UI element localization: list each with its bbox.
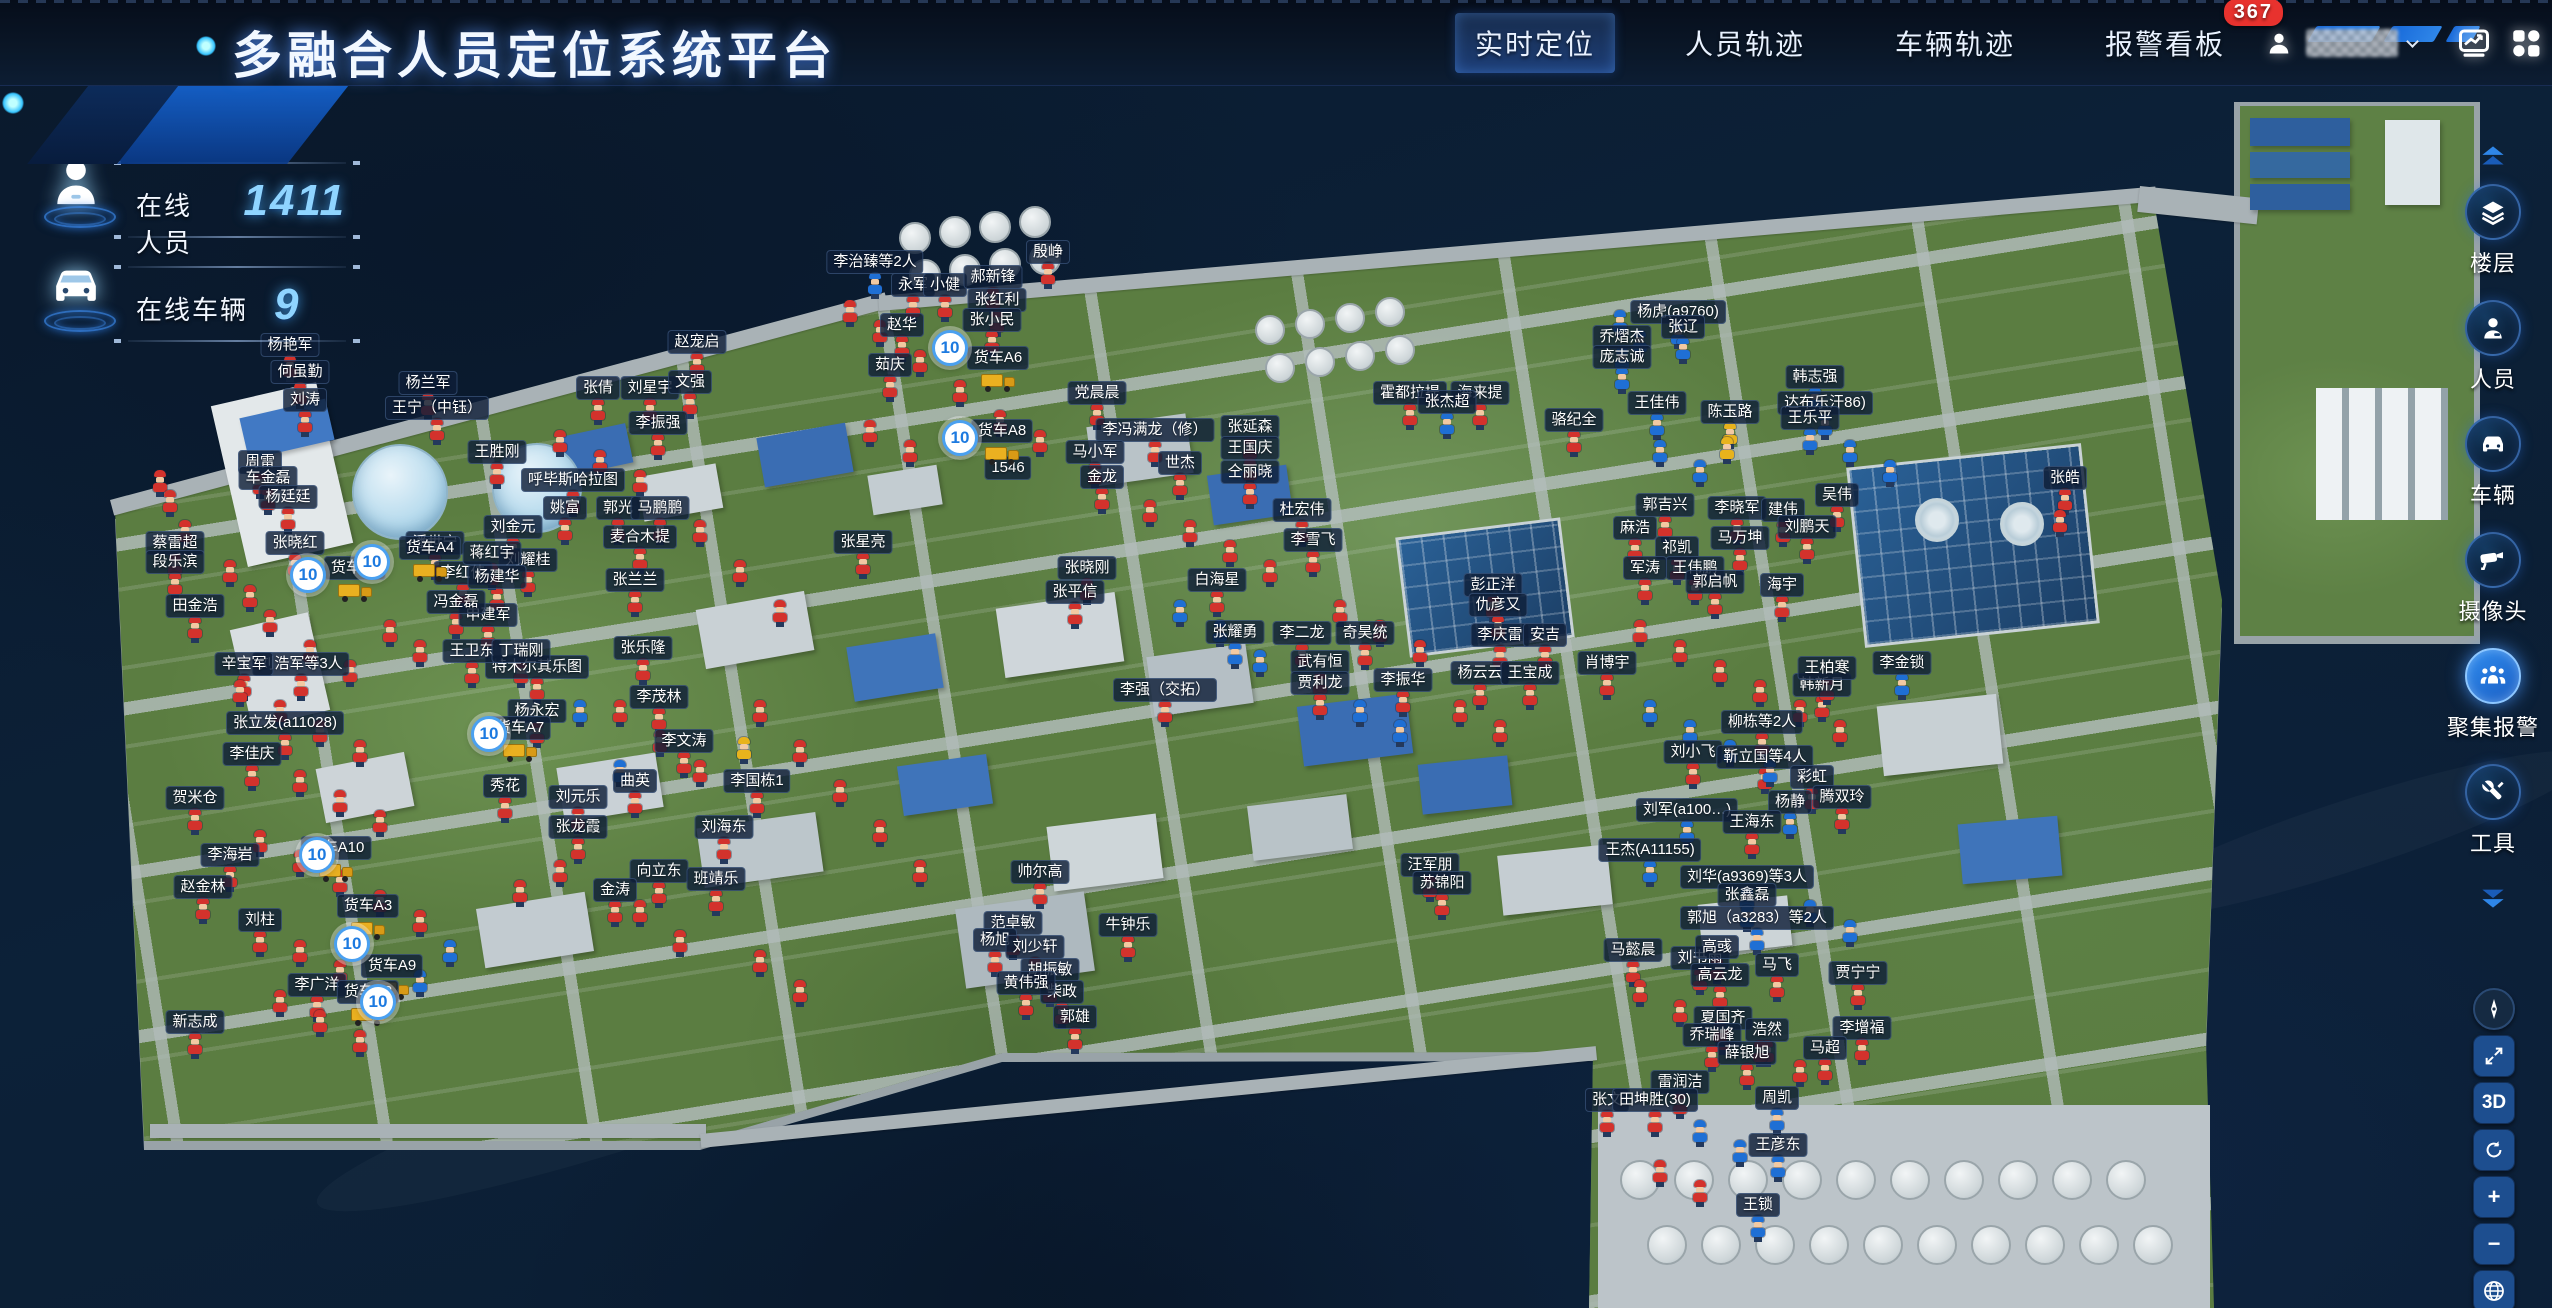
worker-figure[interactable]	[1395, 690, 1411, 717]
worker-figure[interactable]	[382, 620, 398, 647]
worker-figure[interactable]	[1799, 537, 1815, 564]
person-label[interactable]: 仝丽晓	[1220, 460, 1279, 484]
person-label[interactable]: 班靖乐	[686, 867, 745, 891]
person-label[interactable]: 何虽勤	[270, 360, 329, 384]
worker-figure[interactable]	[627, 590, 643, 617]
worker-figure[interactable]	[1412, 640, 1428, 667]
person-label[interactable]: 郭雄	[1053, 1005, 1097, 1029]
worker-figure[interactable]	[352, 1030, 368, 1057]
zoom-out-button[interactable]: −	[2473, 1223, 2515, 1265]
person-label[interactable]: 蒋红宇	[462, 541, 521, 565]
reset-view-button[interactable]	[2473, 1129, 2515, 1171]
worker-figure[interactable]	[1750, 1215, 1766, 1242]
worker-figure[interactable]	[1067, 1027, 1083, 1054]
username-blurred[interactable]	[2306, 29, 2398, 57]
nav-tab-2[interactable]: 人员轨迹	[1665, 13, 1825, 73]
person-label[interactable]: 马懿晨	[1603, 938, 1662, 962]
worker-figure[interactable]	[1642, 700, 1658, 727]
worker-figure[interactable]	[1032, 430, 1048, 457]
person-label[interactable]: 贾宁宁	[1828, 961, 1887, 985]
worker-figure[interactable]	[187, 808, 203, 835]
worker-figure[interactable]	[1770, 1155, 1786, 1182]
person-label[interactable]: 李振强	[628, 411, 687, 435]
person-label[interactable]: 张立发(a11028)	[226, 711, 344, 735]
cluster-badge[interactable]: 10	[942, 420, 978, 456]
worker-figure[interactable]	[650, 433, 666, 460]
worker-figure[interactable]	[1719, 437, 1735, 464]
person-label[interactable]: 郭旭（a3283）等2人	[1680, 906, 1834, 930]
person-label[interactable]: 刘元乐	[548, 785, 607, 809]
person-label[interactable]: 张耀勇	[1205, 620, 1264, 644]
nav-tab-4[interactable]: 报警看板367	[2085, 13, 2245, 73]
person-label[interactable]: 柳栋等2人	[1721, 710, 1803, 734]
worker-figure[interactable]	[676, 751, 692, 778]
worker-figure[interactable]	[842, 300, 858, 327]
apps-grid-icon[interactable]	[2505, 22, 2547, 64]
worker-figure[interactable]	[692, 760, 708, 787]
worker-figure[interactable]	[752, 700, 768, 727]
person-label[interactable]: 田金浩	[165, 594, 224, 618]
person-label[interactable]: 李国栋1	[723, 769, 790, 793]
person-label[interactable]: 新志成	[165, 1010, 224, 1034]
person-label[interactable]: 陈玉路	[1700, 400, 1759, 424]
worker-figure[interactable]	[1774, 595, 1790, 622]
person-label[interactable]: 仇彦又	[1468, 593, 1527, 617]
worker-figure[interactable]	[1842, 440, 1858, 467]
person-label[interactable]: 王国庆	[1220, 436, 1279, 460]
person-label[interactable]: 王锁	[1736, 1193, 1780, 1217]
worker-figure[interactable]	[195, 897, 211, 924]
person-label[interactable]: 安吉	[1523, 623, 1567, 647]
person-label[interactable]: 王柏寒	[1797, 656, 1856, 680]
person-label[interactable]: 刘柱	[238, 908, 282, 932]
worker-figure[interactable]	[1172, 600, 1188, 627]
person-label[interactable]: 马鹏鹏	[630, 496, 689, 520]
worker-figure[interactable]	[1209, 590, 1225, 617]
worker-figure[interactable]	[292, 940, 308, 967]
worker-figure[interactable]	[1242, 482, 1258, 509]
person-label[interactable]: 韩志强	[1785, 365, 1844, 389]
person-label[interactable]: 王海东	[1722, 810, 1781, 834]
person-label[interactable]: 马小军	[1065, 440, 1124, 464]
worker-figure[interactable]	[772, 600, 788, 627]
worker-figure[interactable]	[187, 1032, 203, 1059]
worker-figure[interactable]	[937, 295, 953, 322]
worker-figure[interactable]	[272, 990, 288, 1017]
person-label[interactable]: 薛银旭	[1717, 1041, 1776, 1065]
worker-figure[interactable]	[612, 700, 628, 727]
person-label[interactable]: 张鑫磊	[1717, 883, 1776, 907]
worker-figure[interactable]	[187, 616, 203, 643]
worker-figure[interactable]	[867, 272, 883, 299]
worker-figure[interactable]	[1675, 337, 1691, 364]
worker-figure[interactable]	[1769, 1108, 1785, 1135]
worker-figure[interactable]	[912, 350, 928, 377]
worker-figure[interactable]	[280, 507, 296, 534]
worker-figure[interactable]	[1312, 693, 1328, 720]
worker-figure[interactable]	[1647, 1110, 1663, 1137]
worker-figure[interactable]	[752, 950, 768, 977]
person-label[interactable]: 肖博宇	[1577, 651, 1636, 675]
worker-figure[interactable]	[1182, 520, 1198, 547]
nav-tab-3[interactable]: 车辆轨迹	[1875, 13, 2035, 73]
worker-figure[interactable]	[242, 585, 258, 612]
worker-figure[interactable]	[1142, 500, 1158, 527]
worker-figure[interactable]	[372, 810, 388, 837]
basemap-button[interactable]	[2473, 1270, 2515, 1308]
worker-figure[interactable]	[1252, 650, 1268, 677]
worker-figure[interactable]	[632, 900, 648, 927]
worker-figure[interactable]	[332, 790, 348, 817]
worker-figure[interactable]	[497, 796, 513, 823]
person-label[interactable]: 殷峥	[1026, 240, 1070, 264]
person-label[interactable]: 杨兰军	[398, 371, 457, 395]
worker-figure[interactable]	[952, 380, 968, 407]
worker-figure[interactable]	[627, 791, 643, 818]
person-label[interactable]: 王乐平	[1780, 406, 1839, 430]
person-label[interactable]: 小健	[923, 273, 967, 297]
tool-person[interactable]: 人员	[2465, 300, 2521, 394]
person-label[interactable]: 骆纪全	[1544, 408, 1603, 432]
rail-scroll-up-icon[interactable]	[2476, 144, 2510, 170]
worker-figure[interactable]	[590, 398, 606, 425]
vehicle-label[interactable]: 货车A3	[337, 894, 399, 918]
worker-figure[interactable]	[1157, 700, 1173, 727]
zoom-in-button[interactable]: +	[2473, 1176, 2515, 1218]
person-label[interactable]: 李二龙	[1272, 621, 1331, 645]
fullscreen-button[interactable]	[2473, 1035, 2515, 1077]
worker-figure[interactable]	[1434, 893, 1450, 920]
worker-figure[interactable]	[792, 740, 808, 767]
person-label[interactable]: 杜宏伟	[1272, 498, 1331, 522]
person-label[interactable]: 周凯	[1755, 1086, 1799, 1110]
person-label[interactable]: 张小民	[962, 308, 1021, 332]
person-label[interactable]: 黄伟强	[996, 971, 1055, 995]
monitor-chart-icon[interactable]	[2453, 22, 2495, 64]
person-label[interactable]: 张乐隆	[613, 636, 672, 660]
worker-figure[interactable]	[1357, 643, 1373, 670]
worker-figure[interactable]	[708, 889, 724, 916]
worker-figure[interactable]	[1672, 640, 1688, 667]
worker-figure[interactable]	[1632, 620, 1648, 647]
worker-figure[interactable]	[1472, 683, 1488, 710]
person-label[interactable]: 刘金元	[483, 515, 542, 539]
person-label[interactable]: 张兰兰	[605, 568, 664, 592]
cluster-badge[interactable]: 10	[354, 544, 390, 580]
person-label[interactable]: 马万坤	[1710, 526, 1769, 550]
person-label[interactable]: 姚富	[543, 496, 587, 520]
plant-3d-map[interactable]: 杨艳军何虽勤刘涛杨兰军王宁（中钰）王胜刚周雷车金磊杨廷廷蔡雷超段乐滨张晓红潘世宁…	[0, 0, 2552, 1308]
person-label[interactable]: 呼毕斯哈拉图	[521, 468, 625, 492]
person-label[interactable]: 刘海东	[694, 815, 753, 839]
person-label[interactable]: 王杰(A11155)	[1598, 838, 1701, 862]
person-label[interactable]: 郭启帆	[1685, 570, 1744, 594]
worker-figure[interactable]	[222, 560, 238, 587]
worker-figure[interactable]	[489, 462, 505, 489]
worker-figure[interactable]	[1692, 1180, 1708, 1207]
worker-figure[interactable]	[1352, 700, 1368, 727]
truck-marker[interactable]	[985, 445, 1019, 465]
person-label[interactable]: 刘少轩	[1005, 935, 1064, 959]
person-label[interactable]: 王胜刚	[467, 440, 526, 464]
worker-figure[interactable]	[1566, 430, 1582, 457]
worker-figure[interactable]	[312, 1010, 328, 1037]
worker-figure[interactable]	[412, 640, 428, 667]
worker-figure[interactable]	[1614, 367, 1630, 394]
worker-figure[interactable]	[552, 430, 568, 457]
worker-figure[interactable]	[832, 780, 848, 807]
person-label[interactable]: 张星亮	[833, 530, 892, 554]
worker-figure[interactable]	[1599, 1110, 1615, 1137]
person-label[interactable]: 张皓	[2043, 466, 2087, 490]
cluster-badge[interactable]: 10	[334, 926, 370, 962]
person-label[interactable]: 李庆雷	[1470, 623, 1529, 647]
worker-figure[interactable]	[292, 770, 308, 797]
person-label[interactable]: 军涛	[1623, 556, 1667, 580]
cluster-badge[interactable]: 10	[932, 330, 968, 366]
truck-marker[interactable]	[338, 582, 372, 602]
worker-figure[interactable]	[412, 910, 428, 937]
person-label[interactable]: 文强	[668, 370, 712, 394]
worker-figure[interactable]	[1120, 935, 1136, 962]
person-label[interactable]: 白海星	[1187, 568, 1246, 592]
worker-figure[interactable]	[1392, 720, 1408, 747]
person-label[interactable]: 张晓红	[265, 531, 324, 555]
worker-figure[interactable]	[1172, 473, 1188, 500]
worker-figure[interactable]	[749, 791, 765, 818]
nav-tab-1[interactable]: 实时定位	[1455, 13, 1615, 73]
worker-figure[interactable]	[1752, 680, 1768, 707]
worker-figure[interactable]	[1749, 928, 1765, 955]
cluster-badge[interactable]: 10	[360, 984, 396, 1020]
person-label[interactable]: 海宇	[1760, 573, 1804, 597]
worker-figure[interactable]	[352, 740, 368, 767]
worker-figure[interactable]	[736, 737, 752, 764]
person-label[interactable]: 王宁（中钰）	[385, 396, 489, 420]
person-label[interactable]: 张辽	[1661, 315, 1705, 339]
worker-figure[interactable]	[651, 881, 667, 908]
person-label[interactable]: 李佳庆	[222, 742, 281, 766]
person-label[interactable]: 杨廷廷	[258, 485, 317, 509]
person-label[interactable]: 李冯满龙（修）	[1095, 418, 1214, 442]
person-label[interactable]: 辛宝军	[214, 652, 273, 676]
tool-people-group[interactable]: 聚集报警	[2447, 648, 2539, 742]
worker-figure[interactable]	[632, 470, 648, 497]
truck-marker[interactable]	[981, 372, 1015, 392]
person-label[interactable]: 王佳伟	[1627, 391, 1686, 415]
worker-figure[interactable]	[732, 560, 748, 587]
person-label[interactable]: 向立东	[629, 859, 688, 883]
worker-figure[interactable]	[232, 680, 248, 707]
worker-figure[interactable]	[1018, 993, 1034, 1020]
worker-figure[interactable]	[1769, 975, 1785, 1002]
worker-figure[interactable]	[293, 674, 309, 701]
vehicle-label[interactable]: 货车A6	[967, 346, 1029, 370]
person-label[interactable]: 刘小飞	[1663, 740, 1722, 764]
worker-figure[interactable]	[1032, 882, 1048, 909]
worker-figure[interactable]	[635, 658, 651, 685]
truck-marker[interactable]	[503, 742, 537, 762]
person-label[interactable]: 刘鹏天	[1777, 515, 1836, 539]
worker-figure[interactable]	[1692, 1120, 1708, 1147]
worker-figure[interactable]	[2052, 510, 2068, 537]
person-label[interactable]: 赵金林	[173, 875, 232, 899]
worker-figure[interactable]	[1227, 642, 1243, 669]
worker-figure[interactable]	[872, 820, 888, 847]
chevron-down-icon[interactable]	[2406, 35, 2419, 48]
cluster-badge[interactable]: 10	[299, 837, 335, 873]
worker-figure[interactable]	[429, 418, 445, 445]
person-label[interactable]: 麻浩	[1613, 516, 1657, 540]
worker-figure[interactable]	[1712, 660, 1728, 687]
worker-figure[interactable]	[1222, 540, 1238, 567]
tool-layers[interactable]: 楼层	[2465, 184, 2521, 278]
worker-figure[interactable]	[1262, 560, 1278, 587]
worker-figure[interactable]	[1492, 720, 1508, 747]
worker-figure[interactable]	[464, 661, 480, 688]
worker-figure[interactable]	[1739, 1063, 1755, 1090]
person-label[interactable]: 李茂林	[629, 685, 688, 709]
person-label[interactable]: 贾利龙	[1290, 671, 1349, 695]
worker-figure[interactable]	[855, 552, 871, 579]
person-label[interactable]: 丁瑞刚	[491, 639, 550, 663]
worker-figure[interactable]	[1782, 812, 1798, 839]
person-label[interactable]: 曲英	[613, 769, 657, 793]
person-label[interactable]: 赵宠启	[667, 330, 726, 354]
person-label[interactable]: 李治臻等2人	[826, 250, 923, 274]
person-label[interactable]: 刘涛	[283, 388, 327, 412]
worker-figure[interactable]	[1842, 920, 1858, 947]
person-label[interactable]: 冯金磊	[426, 590, 485, 614]
worker-figure[interactable]	[1850, 983, 1866, 1010]
worker-figure[interactable]	[1642, 860, 1658, 887]
worker-figure[interactable]	[570, 837, 586, 864]
worker-figure[interactable]	[244, 764, 260, 791]
worker-figure[interactable]	[1599, 673, 1615, 700]
person-label[interactable]: 李晓军	[1707, 496, 1766, 520]
person-label[interactable]: 赵华	[880, 313, 924, 337]
compass-button[interactable]	[2473, 988, 2515, 1030]
worker-figure[interactable]	[1040, 262, 1056, 289]
person-label[interactable]: 李雪飞	[1283, 528, 1342, 552]
person-label[interactable]: 高彧	[1695, 935, 1739, 959]
worker-figure[interactable]	[1652, 440, 1668, 467]
worker-figure[interactable]	[1817, 1058, 1833, 1085]
vehicle-label[interactable]: 货车A8	[971, 419, 1033, 443]
vehicle-label[interactable]: 货车A9	[361, 954, 423, 978]
person-label[interactable]: 李金锁	[1872, 651, 1931, 675]
person-label[interactable]: 段乐滨	[145, 550, 204, 574]
worker-figure[interactable]	[1652, 1160, 1668, 1187]
person-label[interactable]: 张杰超	[1417, 390, 1476, 414]
person-label[interactable]: 金龙	[1080, 465, 1124, 489]
worker-figure[interactable]	[882, 375, 898, 402]
person-label[interactable]: 李文涛	[654, 729, 713, 753]
truck-marker[interactable]	[413, 562, 447, 582]
person-label[interactable]: 党晨晨	[1067, 381, 1126, 405]
worker-figure[interactable]	[1834, 807, 1850, 834]
tool-tools[interactable]: 工具	[2465, 764, 2521, 858]
person-label[interactable]: 奇昊统	[1335, 621, 1394, 645]
person-label[interactable]: 高云龙	[1690, 963, 1749, 987]
cluster-badge[interactable]: 10	[471, 716, 507, 752]
tool-car[interactable]: 车辆	[2465, 416, 2521, 510]
person-label[interactable]: 田坤胜(30)	[1612, 1088, 1698, 1112]
worker-figure[interactable]	[1832, 720, 1848, 747]
person-label[interactable]: 张平信	[1045, 580, 1104, 604]
person-label[interactable]: 贺米仓	[165, 786, 224, 810]
worker-figure[interactable]	[252, 930, 268, 957]
person-label[interactable]: 麦合木提	[603, 525, 677, 549]
person-label[interactable]: 秀花	[483, 774, 527, 798]
worker-figure[interactable]	[442, 940, 458, 967]
worker-figure[interactable]	[162, 490, 178, 517]
worker-figure[interactable]	[1685, 762, 1701, 789]
worker-figure[interactable]	[297, 410, 313, 437]
worker-figure[interactable]	[792, 980, 808, 1007]
person-label[interactable]: 腾双玲	[1812, 785, 1871, 809]
person-label[interactable]: 王彦东	[1748, 1133, 1807, 1157]
person-label[interactable]: 马超	[1803, 1036, 1847, 1060]
worker-figure[interactable]	[1632, 980, 1648, 1007]
worker-figure[interactable]	[716, 837, 732, 864]
worker-figure[interactable]	[1637, 578, 1653, 605]
person-label[interactable]: 金涛	[593, 878, 637, 902]
person-label[interactable]: 张龙霞	[548, 815, 607, 839]
person-label[interactable]: 苏锦阳	[1412, 871, 1471, 895]
person-label[interactable]: 郭吉兴	[1635, 493, 1694, 517]
person-label[interactable]: 帅尔高	[1010, 860, 1069, 884]
worker-figure[interactable]	[1649, 413, 1665, 440]
person-label[interactable]: 郝新锋	[963, 265, 1022, 289]
cluster-badge[interactable]: 10	[290, 557, 326, 593]
person-label[interactable]: 庞志诚	[1592, 345, 1651, 369]
tool-camera[interactable]: 摄像头	[2458, 532, 2527, 626]
worker-figure[interactable]	[1439, 412, 1455, 439]
worker-figure[interactable]	[902, 440, 918, 467]
worker-figure[interactable]	[557, 518, 573, 545]
worker-figure[interactable]	[1402, 403, 1418, 430]
worker-figure[interactable]	[672, 930, 688, 957]
worker-figure[interactable]	[1452, 700, 1468, 727]
person-label[interactable]: 李振华	[1373, 668, 1432, 692]
person-label[interactable]: 浩然	[1745, 1018, 1789, 1042]
person-label[interactable]: 张倩	[576, 376, 620, 400]
worker-figure[interactable]	[912, 860, 928, 887]
worker-figure[interactable]	[1744, 832, 1760, 859]
worker-figure[interactable]	[692, 520, 708, 547]
worker-figure[interactable]	[1894, 673, 1910, 700]
mode-3d-button[interactable]: 3D	[2473, 1082, 2515, 1124]
worker-figure[interactable]	[262, 610, 278, 637]
worker-figure[interactable]	[512, 880, 528, 907]
worker-figure[interactable]	[1732, 1140, 1748, 1167]
vehicle-label[interactable]: 货车A4	[399, 536, 461, 560]
person-label[interactable]: 茹庆	[868, 353, 912, 377]
worker-figure[interactable]	[1067, 602, 1083, 629]
person-label[interactable]: 李强（交拓）	[1113, 678, 1217, 702]
person-label[interactable]: 李海岩	[200, 843, 259, 867]
worker-figure[interactable]	[1854, 1038, 1870, 1065]
worker-figure[interactable]	[607, 900, 623, 927]
worker-figure[interactable]	[552, 860, 568, 887]
worker-figure[interactable]	[1692, 460, 1708, 487]
person-label[interactable]: 吴伟	[1815, 483, 1859, 507]
worker-figure[interactable]	[1305, 550, 1321, 577]
worker-figure[interactable]	[1522, 683, 1538, 710]
person-label[interactable]: 杨建华	[467, 565, 526, 589]
person-label[interactable]: 世杰	[1158, 451, 1202, 475]
